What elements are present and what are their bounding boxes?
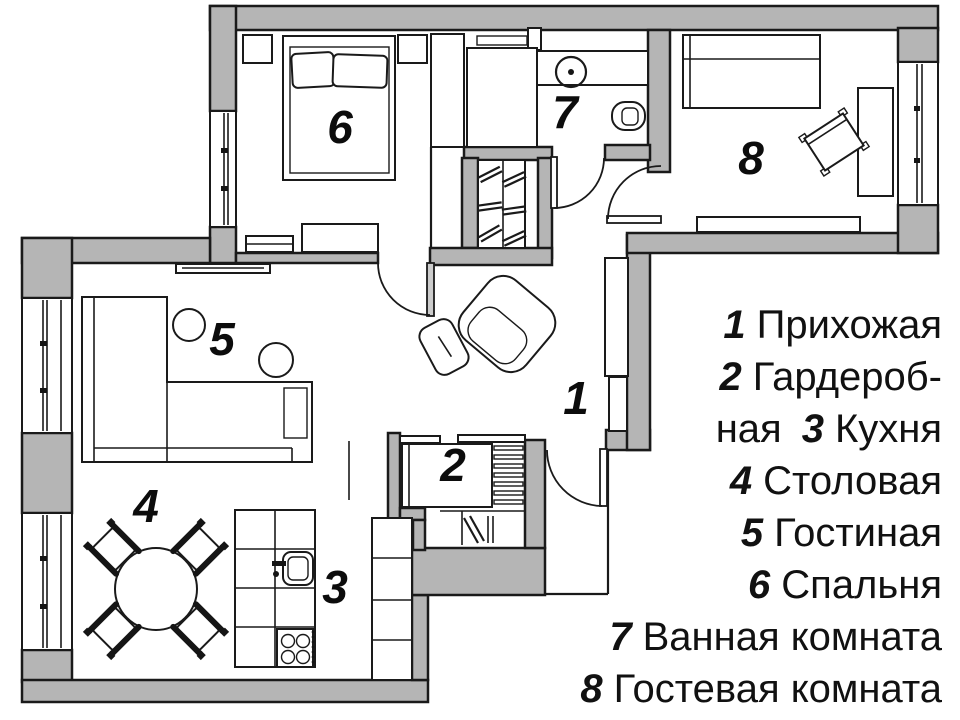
legend-room-name: Прихожая bbox=[757, 303, 942, 347]
guest-room-furniture bbox=[683, 35, 893, 232]
faucet bbox=[272, 561, 286, 566]
floor-plan-page: 1 2 3 4 5 6 7 8 1Прихожая 2Гардероб- ная… bbox=[0, 0, 960, 720]
door-bathroom bbox=[551, 157, 604, 208]
room-label-4: 4 bbox=[132, 480, 159, 532]
legend-number: 3 bbox=[802, 407, 824, 451]
legend-room-name: Гардероб- bbox=[753, 355, 942, 399]
dining-table bbox=[115, 548, 197, 630]
window-guest-room bbox=[898, 62, 938, 205]
legend-line: 5Гостиная bbox=[580, 507, 942, 559]
tall-cabinets bbox=[372, 518, 412, 680]
legend-number: 5 bbox=[741, 511, 763, 555]
nightstand bbox=[243, 35, 272, 63]
wardrobe-top-wall bbox=[458, 435, 525, 442]
shower-closet bbox=[467, 48, 537, 147]
legend-room-name: Гостиная bbox=[774, 511, 942, 555]
nightstand bbox=[398, 35, 427, 63]
shelf bbox=[477, 36, 527, 45]
window-living bbox=[22, 298, 72, 433]
pillow bbox=[332, 54, 387, 88]
legend: 1Прихожая 2Гардероб- ная3Кухня 4Столовая… bbox=[580, 299, 942, 715]
side-table bbox=[259, 343, 293, 377]
legend-number: 1 bbox=[723, 303, 745, 347]
room-label-3: 3 bbox=[322, 561, 348, 613]
console bbox=[858, 88, 893, 196]
room-label-7: 7 bbox=[552, 86, 580, 138]
legend-room-name: Спальня bbox=[781, 563, 942, 607]
low-shelf bbox=[697, 217, 860, 232]
bathroom-niche bbox=[528, 28, 541, 50]
dresser bbox=[302, 224, 378, 252]
partition-bedroom-bath bbox=[431, 34, 464, 147]
living-furniture bbox=[82, 264, 312, 462]
door-bedroom bbox=[378, 263, 434, 316]
room-label-2: 2 bbox=[439, 439, 466, 491]
window-dining bbox=[22, 513, 72, 650]
legend-room-name: Гостевая комната bbox=[614, 667, 942, 711]
sofa bbox=[683, 35, 820, 108]
room-label-6: 6 bbox=[327, 101, 353, 153]
legend-room-name: Столовая bbox=[763, 459, 942, 503]
pillow bbox=[291, 52, 335, 88]
legend-number: 7 bbox=[609, 615, 631, 659]
legend-number: 4 bbox=[730, 459, 752, 503]
legend-line: 6Спальня bbox=[580, 559, 942, 611]
room-label-8: 8 bbox=[738, 132, 764, 184]
legend-line: 8Гостевая комната bbox=[580, 663, 942, 715]
side-table bbox=[173, 309, 205, 341]
wardrobe-top-wall bbox=[400, 436, 440, 443]
window-bedroom bbox=[210, 111, 236, 227]
washer-counter bbox=[537, 51, 648, 85]
legend-prefix: ная bbox=[716, 407, 782, 451]
legend-number: 8 bbox=[580, 667, 602, 711]
legend-line: 4Столовая bbox=[580, 455, 942, 507]
hall-closet bbox=[478, 160, 526, 248]
legend-line: 7Ванная комната bbox=[580, 611, 942, 663]
legend-line: ная3Кухня bbox=[580, 403, 942, 455]
toilet bbox=[612, 102, 645, 130]
legend-number: 6 bbox=[748, 563, 770, 607]
room-label-5: 5 bbox=[209, 313, 236, 365]
legend-line: 2Гардероб- bbox=[580, 351, 942, 403]
legend-room-name: Ванная комната bbox=[643, 615, 942, 659]
legend-room-name: Кухня bbox=[835, 407, 942, 451]
door-guest-room bbox=[607, 166, 661, 223]
legend-number: 2 bbox=[719, 355, 741, 399]
legend-line: 1Прихожая bbox=[580, 299, 942, 351]
dining-furniture bbox=[83, 518, 229, 660]
